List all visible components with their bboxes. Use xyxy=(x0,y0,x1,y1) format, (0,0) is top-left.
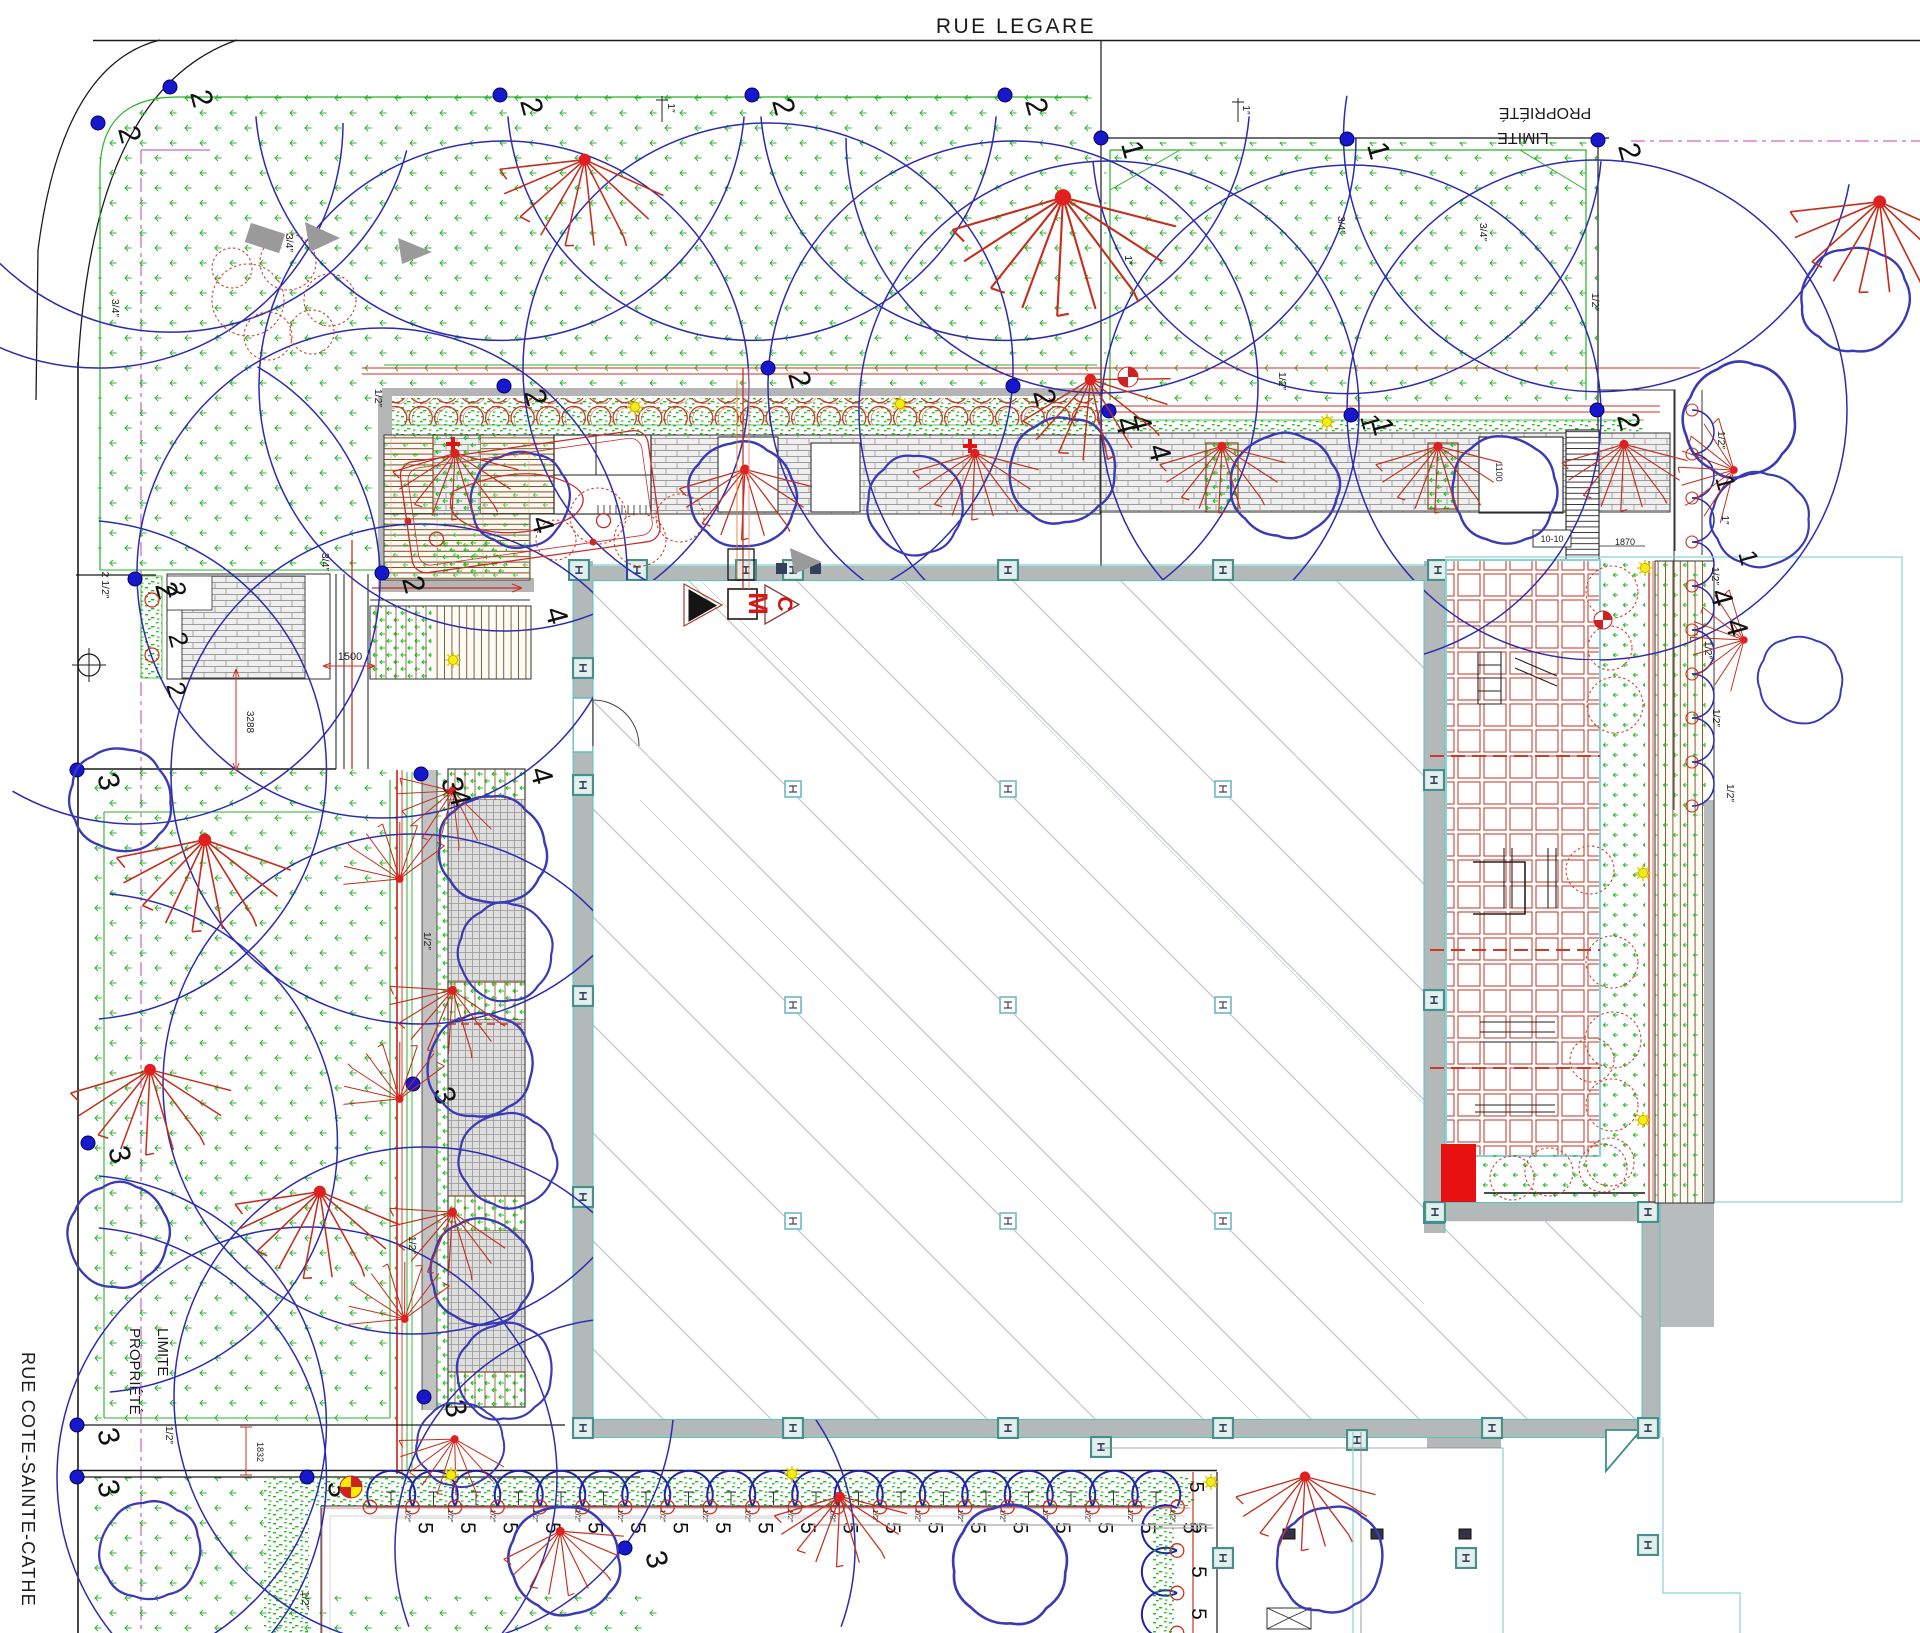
svg-text:1/2″: 1/2″ xyxy=(1702,641,1714,660)
svg-text:1/2″: 1/2″ xyxy=(446,1509,455,1522)
svg-text:5: 5 xyxy=(966,1522,989,1534)
svg-text:5: 5 xyxy=(456,1522,479,1534)
svg-text:1/2″: 1/2″ xyxy=(299,1591,311,1610)
svg-text:5: 5 xyxy=(1009,1522,1032,1534)
svg-text:3/4″: 3/4″ xyxy=(109,299,121,318)
svg-text:1/2″: 1/2″ xyxy=(1084,1509,1093,1522)
svg-text:1/2″: 1/2″ xyxy=(421,932,433,951)
svg-text:3/4″: 3/4″ xyxy=(283,234,295,253)
svg-text:1/2″: 1/2″ xyxy=(489,1509,498,1522)
svg-text:5: 5 xyxy=(1187,1566,1210,1578)
svg-text:1″: 1″ xyxy=(1122,255,1134,265)
svg-text:1/2″: 1/2″ xyxy=(616,1509,625,1522)
svg-text:1″: 1″ xyxy=(1240,105,1252,115)
svg-text:1/2″: 1/2″ xyxy=(956,1509,965,1522)
svg-text:1/2″: 1/2″ xyxy=(914,1509,923,1522)
svg-text:10-10: 10-10 xyxy=(1540,534,1563,544)
svg-text:5: 5 xyxy=(414,1522,437,1534)
svg-text:RUE LEGARE: RUE LEGARE xyxy=(936,15,1096,38)
svg-text:5: 5 xyxy=(881,1522,904,1534)
svg-text:5: 5 xyxy=(754,1522,777,1534)
svg-text:1/2″: 1/2″ xyxy=(406,1236,418,1255)
svg-text:1100: 1100 xyxy=(1494,462,1504,481)
svg-text:1500: 1500 xyxy=(338,651,362,663)
svg-text:3/4″: 3/4″ xyxy=(319,553,331,572)
svg-text:5: 5 xyxy=(669,1522,692,1534)
svg-text:C: C xyxy=(773,596,796,611)
svg-text:3288: 3288 xyxy=(244,711,255,734)
svg-text:1/2″: 1/2″ xyxy=(999,1509,1008,1522)
svg-text:1/2″: 1/2″ xyxy=(1709,567,1721,586)
svg-text:1″: 1″ xyxy=(665,103,677,113)
svg-text:1/2″: 1/2″ xyxy=(701,1509,710,1522)
svg-text:1/2″: 1/2″ xyxy=(404,1509,413,1522)
svg-text:1/2″: 1/2″ xyxy=(1589,293,1601,312)
svg-text:5: 5 xyxy=(711,1522,734,1534)
svg-text:5: 5 xyxy=(1094,1522,1117,1534)
svg-text:1/2″: 1/2″ xyxy=(372,389,384,408)
svg-text:5: 5 xyxy=(924,1522,947,1534)
svg-text:1/2″: 1/2″ xyxy=(659,1509,668,1522)
svg-text:1/2″: 1/2″ xyxy=(1715,431,1727,450)
svg-text:2 1/2″: 2 1/2″ xyxy=(99,571,111,598)
svg-text:1/2″: 1/2″ xyxy=(1710,709,1722,728)
svg-text:RUE COTE-SAINTE-CATHE: RUE COTE-SAINTE-CATHE xyxy=(18,1352,38,1607)
svg-text:1/2″: 1/2″ xyxy=(1276,372,1288,391)
svg-text:PROPRIÉTÉ: PROPRIÉTÉ xyxy=(1499,104,1591,123)
svg-text:5: 5 xyxy=(1185,1481,1207,1492)
svg-text:1/2″: 1/2″ xyxy=(163,1426,175,1445)
svg-text:1″: 1″ xyxy=(1719,515,1731,525)
svg-text:5: 5 xyxy=(1187,1608,1210,1620)
svg-text:1/2″: 1/2″ xyxy=(1126,1509,1135,1522)
svg-text:1/2″: 1/2″ xyxy=(744,1509,753,1522)
svg-text:1/2″: 1/2″ xyxy=(1724,784,1736,803)
svg-text:3/4″: 3/4″ xyxy=(1477,223,1489,242)
svg-text:1/2″: 1/2″ xyxy=(574,1509,583,1522)
svg-text:3/4″: 3/4″ xyxy=(1335,216,1347,235)
svg-text:1832: 1832 xyxy=(255,1442,265,1462)
svg-text:M: M xyxy=(743,592,773,615)
svg-text:1870: 1870 xyxy=(1615,537,1635,547)
